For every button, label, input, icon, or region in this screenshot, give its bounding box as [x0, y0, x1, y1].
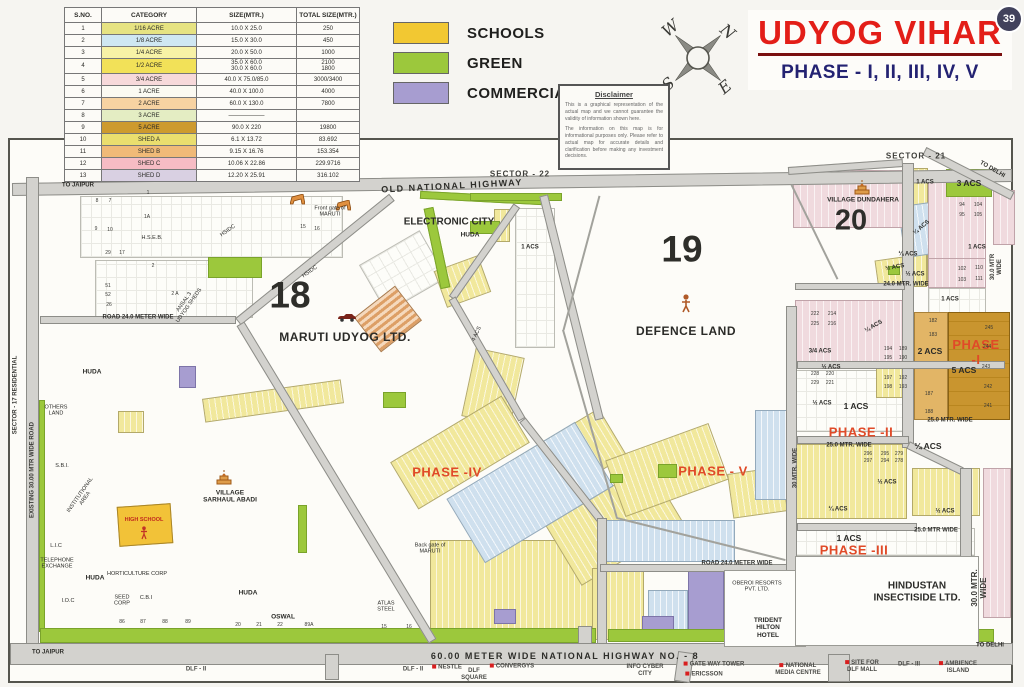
road-stub	[828, 654, 850, 682]
table-row: 12SHED C10.06 X 22.86229.9716	[65, 158, 360, 170]
table-cell: 153.354	[297, 146, 360, 158]
temple-icon	[852, 180, 872, 195]
green-patch	[658, 464, 677, 478]
table-cell: 3/4 ACRE	[102, 74, 197, 86]
maruti-gate-icon	[290, 194, 305, 205]
table-cell: 450	[297, 35, 360, 47]
road-30m	[902, 163, 914, 448]
table-cell: 1/8 ACRE	[102, 35, 197, 47]
table-header: SIZE(MTR.)	[197, 8, 297, 23]
green-strip	[39, 400, 45, 632]
table-cell: 40.0 X 75.0/85.0	[197, 74, 297, 86]
national-highway-8	[10, 643, 1013, 665]
table-cell: 3 ACRE	[102, 110, 197, 122]
table-header: CATEGORY	[102, 8, 197, 23]
table-cell: 10	[65, 134, 102, 146]
table-cell: SHED C	[102, 158, 197, 170]
hindustan-insectiside-block	[795, 556, 979, 646]
table-row: 95 ACRE90.0 X 22019800	[65, 122, 360, 134]
table-cell: SHED D	[102, 170, 197, 182]
table-cell: 83.692	[297, 134, 360, 146]
road-25m	[797, 361, 1005, 369]
plot-field	[80, 196, 343, 258]
table-cell: 6.1 X 13.72	[197, 134, 297, 146]
legend-item-commercial: COMMERCIAL	[393, 82, 575, 104]
table-cell: 1/2 ACRE	[102, 59, 197, 74]
green-strip	[40, 628, 596, 643]
legend-label: SCHOOLS	[467, 25, 545, 42]
schools-swatch	[393, 22, 449, 44]
page-title: UDYOG VIHAR	[758, 14, 1002, 56]
table-cell: 1 ACRE	[102, 86, 197, 98]
table-cell: 3000/3400	[297, 74, 360, 86]
road-25m	[797, 523, 917, 531]
temple-icon	[214, 470, 234, 485]
table-cell: 11	[65, 146, 102, 158]
table-cell: 3	[65, 47, 102, 59]
disclaimer-box: Disclaimer This is a graphical represent…	[558, 84, 670, 170]
table-cell: 40.0 X 100.0	[197, 86, 297, 98]
compass-west: W	[658, 15, 684, 41]
page-subtitle: PHASE - I, II, III, IV, V	[748, 62, 1012, 84]
table-cell: 5 ACRE	[102, 122, 197, 134]
legend: SCHOOLS GREEN COMMERCIAL	[393, 22, 575, 112]
table-row: 11SHED B9.15 X 16.76153.354	[65, 146, 360, 158]
table-cell: 10.0 X 25.0	[197, 23, 297, 35]
table-cell: 10.06 X 22.86	[197, 158, 297, 170]
plot-size-table: S.NO. CATEGORY SIZE(MTR.) TOTAL SIZE(MTR…	[64, 7, 360, 182]
table-cell: 229.9716	[297, 158, 360, 170]
trident-hotel-block	[724, 570, 806, 647]
table-cell: 1	[65, 23, 102, 35]
plot-field	[928, 258, 986, 288]
compass-north: N	[715, 19, 739, 44]
table-cell: SHED B	[102, 146, 197, 158]
table-cell: ——————	[197, 110, 297, 122]
title-card: UDYOG VIHAR PHASE - I, II, III, IV, V	[748, 10, 1012, 90]
legend-label: GREEN	[467, 55, 523, 72]
table-row: 11/16 ACRE10.0 X 25.0250	[65, 23, 360, 35]
table-cell: 15.0 X 30.0	[197, 35, 297, 47]
table-row: 41/2 ACRE35.0 X 60.0 30.0 X 60.02100 180…	[65, 59, 360, 74]
table-row: 83 ACRE——————	[65, 110, 360, 122]
plot-field	[983, 468, 1011, 618]
table-cell: 60.0 X 130.0	[197, 98, 297, 110]
maruti-gate-icon	[336, 200, 351, 211]
table-row: 61 ACRE40.0 X 100.04000	[65, 86, 360, 98]
table-row: 10SHED A6.1 X 13.7283.692	[65, 134, 360, 146]
table-header: S.NO.	[65, 8, 102, 23]
compass-east: E	[714, 76, 736, 99]
plot-field	[795, 444, 907, 519]
table-cell: 7800	[297, 98, 360, 110]
defence-person-icon	[679, 294, 693, 314]
disclaimer-text: This is a graphical representation of th…	[565, 102, 663, 122]
green-patch	[208, 257, 262, 278]
green-swatch	[393, 52, 449, 74]
table-cell: 1/4 ACRE	[102, 47, 197, 59]
table-cell: SHED A	[102, 134, 197, 146]
commercial-block	[179, 366, 196, 388]
table-row: 53/4 ACRE40.0 X 75.0/85.03000/3400	[65, 74, 360, 86]
table-cell: 12	[65, 158, 102, 170]
table-cell: 19800	[297, 122, 360, 134]
table-row: 31/4 ACRE20.0 X 50.01000	[65, 47, 360, 59]
table-cell: 13	[65, 170, 102, 182]
sector17-road	[26, 177, 39, 647]
road-24m-dundahera	[795, 283, 905, 290]
commercial-block	[494, 609, 516, 624]
road-24m	[40, 316, 236, 324]
high-school-block	[117, 503, 174, 547]
table-cell: 12.20 X 25.91	[197, 170, 297, 182]
disclaimer-title: Disclaimer	[565, 90, 663, 99]
school-figure-icon	[139, 526, 149, 540]
road-25m	[797, 436, 909, 444]
green-patch	[610, 474, 623, 483]
table-cell: 4000	[297, 86, 360, 98]
table-cell: 35.0 X 60.0 30.0 X 60.0	[197, 59, 297, 74]
legend-item-green: GREEN	[393, 52, 575, 74]
plot-field	[795, 300, 913, 368]
table-cell: 9	[65, 122, 102, 134]
disclaimer-text: The information on this map is for infor…	[565, 126, 663, 160]
green-patch	[383, 392, 406, 408]
table-row: 72 ACRE60.0 X 130.07800	[65, 98, 360, 110]
table-cell	[297, 110, 360, 122]
table-cell: 316.102	[297, 170, 360, 182]
car-icon	[336, 312, 358, 322]
green-patch	[298, 505, 307, 553]
table-cell: 2	[65, 35, 102, 47]
table-cell: 5	[65, 74, 102, 86]
table-cell: 4	[65, 59, 102, 74]
table-cell: 2100 1800	[297, 59, 360, 74]
green-patch	[888, 266, 900, 275]
commercial-swatch	[393, 82, 449, 104]
udyog-vihar-map-page: SECTOR - 22SECTOR - 21OLD NATIONAL HIGHW…	[0, 0, 1024, 687]
table-cell: 1000	[297, 47, 360, 59]
table-cell: 8	[65, 110, 102, 122]
road-stub	[578, 626, 592, 644]
table-cell: 6	[65, 86, 102, 98]
legend-item-schools: SCHOOLS	[393, 22, 575, 44]
page-number-badge: 39	[995, 5, 1023, 33]
table-row: 21/8 ACRE15.0 X 30.0450	[65, 35, 360, 47]
table-cell: 250	[297, 23, 360, 35]
plot-field	[993, 190, 1015, 245]
table-row: 13SHED D12.20 X 25.91316.102	[65, 170, 360, 182]
road-stub	[325, 654, 339, 680]
table-cell: 90.0 X 220	[197, 122, 297, 134]
table-cell: 1/16 ACRE	[102, 23, 197, 35]
table-cell: 2 ACRE	[102, 98, 197, 110]
plot-field	[118, 411, 144, 433]
table-cell: 7	[65, 98, 102, 110]
road	[597, 518, 607, 646]
table-cell: 9.15 X 16.76	[197, 146, 297, 158]
table-header: TOTAL SIZE(MTR.)	[297, 8, 360, 23]
plot-field	[928, 288, 986, 314]
table-cell: 20.0 X 50.0	[197, 47, 297, 59]
plot-field	[795, 528, 975, 556]
